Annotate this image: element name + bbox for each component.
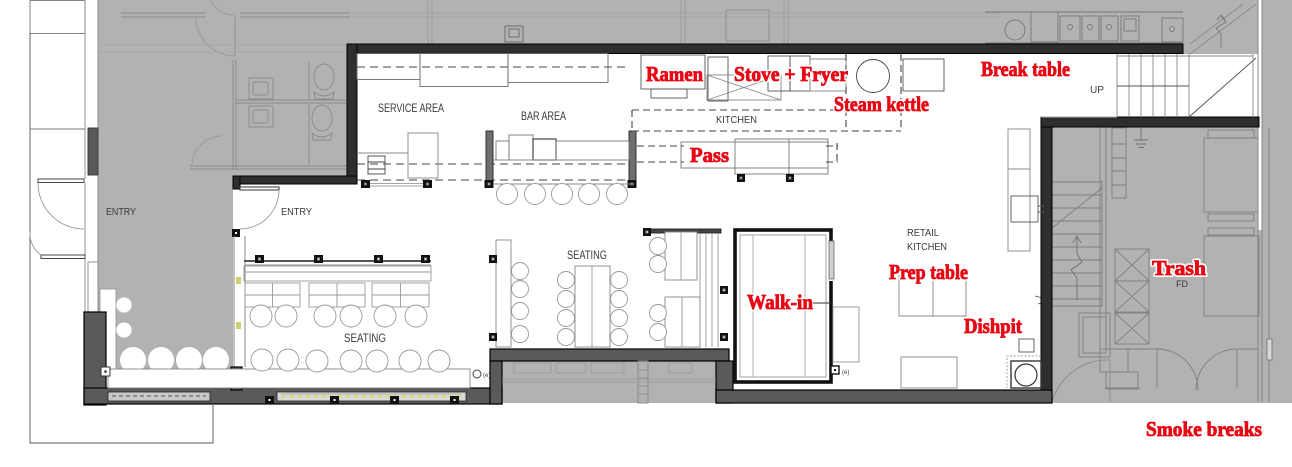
svg-text:(e): (e) <box>483 373 490 379</box>
svg-text:KITCHEN: KITCHEN <box>907 241 947 253</box>
svg-text:FD: FD <box>1176 279 1188 289</box>
svg-text:Dishpit: Dishpit <box>964 314 1022 338</box>
svg-text:ENTRY: ENTRY <box>281 207 312 218</box>
svg-text:SEATING: SEATING <box>344 333 386 345</box>
svg-text:Pass: Pass <box>690 143 729 167</box>
svg-text:Stove + Fryer: Stove + Fryer <box>734 62 848 86</box>
svg-text:Walk-in: Walk-in <box>747 290 813 314</box>
svg-text:SERVICE AREA: SERVICE AREA <box>378 103 444 115</box>
svg-text:SEATING: SEATING <box>567 250 607 262</box>
svg-text:Steam kettle: Steam kettle <box>834 92 929 116</box>
svg-text:KITCHEN: KITCHEN <box>716 114 757 126</box>
svg-text:Smoke breaks: Smoke breaks <box>1146 417 1262 441</box>
svg-text:UP: UP <box>1090 84 1104 96</box>
svg-text:(e): (e) <box>842 370 849 376</box>
svg-text:Break table: Break table <box>981 57 1070 81</box>
svg-text:Trash: Trash <box>1152 256 1206 280</box>
svg-text:ENTRY: ENTRY <box>106 207 136 218</box>
svg-text:RETAIL: RETAIL <box>907 227 939 239</box>
svg-text:Ramen: Ramen <box>646 62 703 86</box>
svg-text:Prep table: Prep table <box>889 260 968 284</box>
svg-text:BAR AREA: BAR AREA <box>521 111 566 123</box>
